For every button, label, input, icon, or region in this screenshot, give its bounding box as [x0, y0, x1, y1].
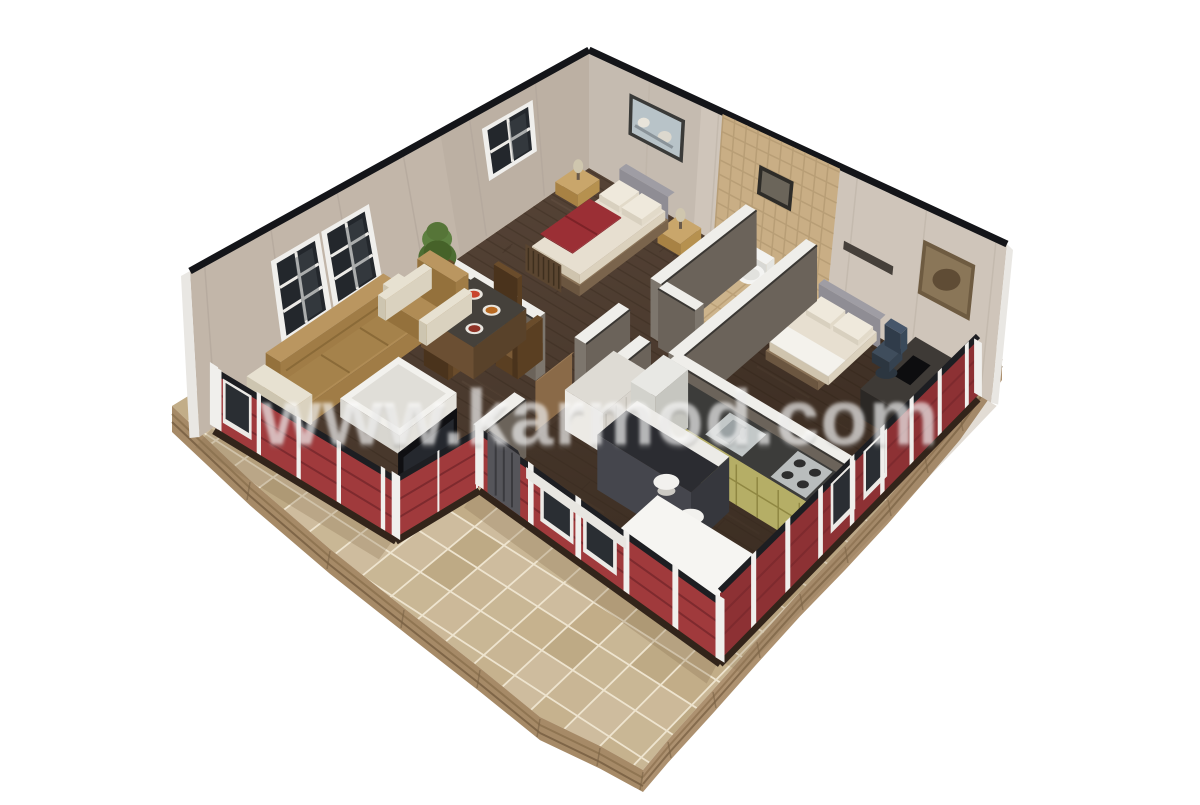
svg-text:www.karmod.com: www.karmod.com [260, 373, 940, 461]
